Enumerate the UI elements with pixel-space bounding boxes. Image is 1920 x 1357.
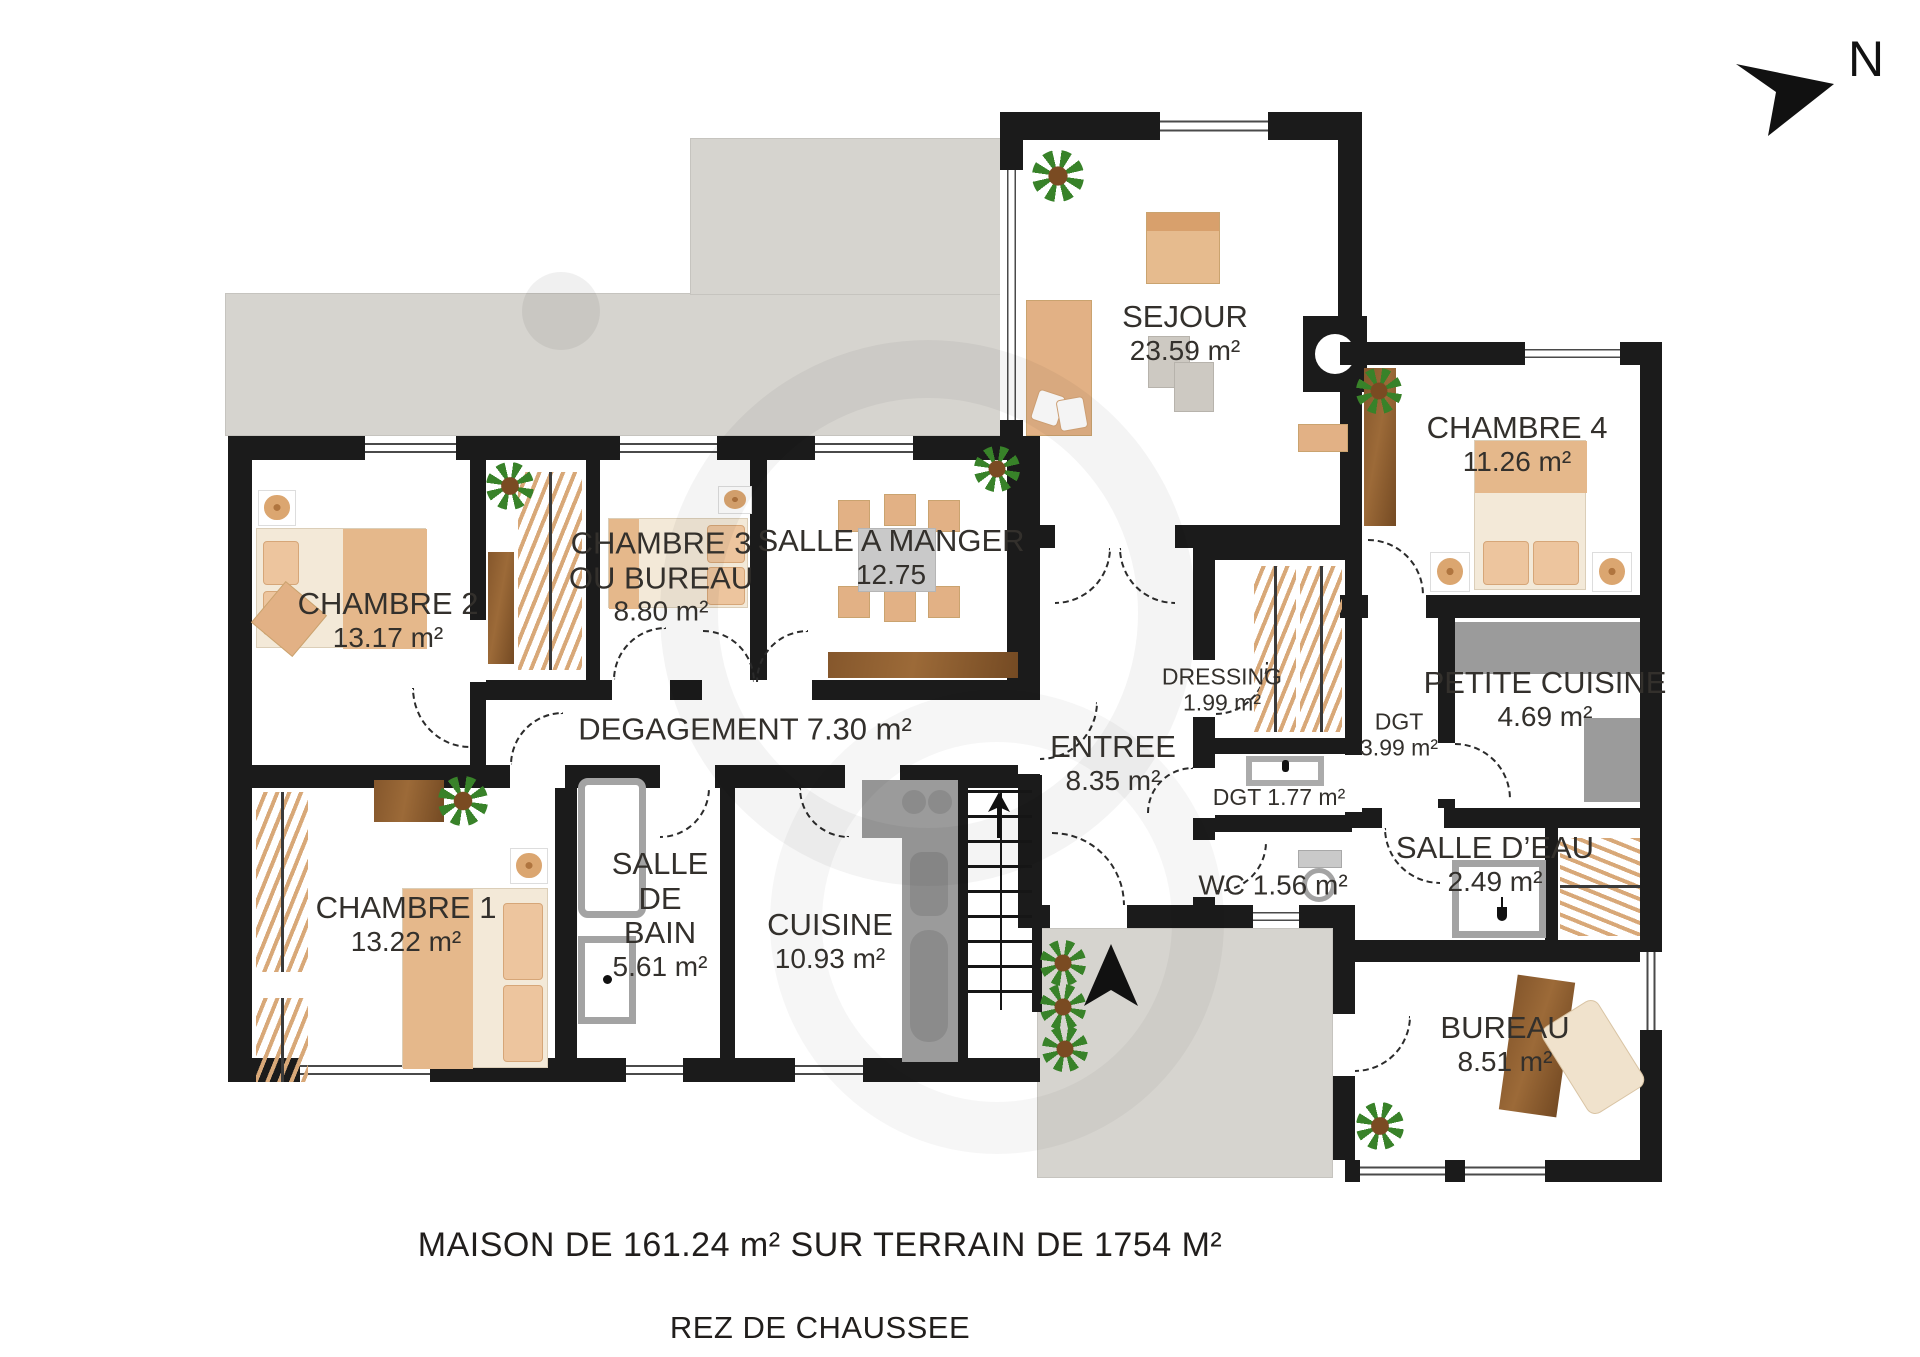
door-opening — [1345, 755, 1362, 812]
room-name: DE — [612, 882, 709, 917]
room-area: 8.35 m² — [1050, 765, 1176, 796]
room-name: WC 1.56 m² — [1198, 869, 1347, 900]
room-label-sejour: SEJOUR 23.59 m² — [1122, 300, 1248, 366]
shower-drain-neck — [1501, 897, 1503, 909]
door-arc — [1455, 743, 1511, 799]
room-name: SALLE D’EAU — [1396, 831, 1594, 866]
room-label-chambre1: CHAMBRE 1 13.22 m² — [316, 891, 497, 957]
closet-rails — [256, 792, 308, 972]
room-area: 2.49 m² — [1396, 866, 1594, 897]
sideboard — [374, 780, 444, 822]
window — [1465, 1160, 1545, 1182]
room-name: DEGAGEMENT 7.30 m² — [578, 713, 912, 748]
room-name: ENTREE — [1050, 730, 1176, 765]
room-name: PETITE CUISINE — [1424, 666, 1667, 701]
floor-plan: SEJOUR 23.59 m² CHAMBRE 4 11.26 m² CHAMB… — [0, 0, 1920, 1357]
window — [1160, 112, 1268, 140]
window — [1360, 1160, 1445, 1182]
wall — [470, 682, 486, 765]
door-opening — [612, 680, 670, 700]
shower-drain — [603, 975, 612, 984]
plant-icon — [1032, 150, 1084, 202]
room-label-cuisine: CUISINE 10.93 m² — [767, 908, 893, 974]
door-opening — [1368, 595, 1426, 618]
room-name: CHAMBRE 2 — [298, 587, 479, 622]
coffee-table — [1146, 212, 1220, 284]
room-area: 1.99 m² — [1162, 690, 1282, 716]
wall — [1340, 388, 1362, 545]
room-area: 12.75 — [757, 559, 1024, 590]
nightstand — [1430, 552, 1470, 592]
window — [1253, 905, 1299, 928]
nightstand — [258, 490, 296, 526]
watermark — [522, 272, 600, 350]
wall — [228, 436, 252, 1082]
room-name: DRESSING — [1162, 664, 1282, 690]
plant-icon — [1356, 1102, 1404, 1150]
door-opening — [510, 765, 565, 788]
room-label-degagement: DEGAGEMENT 7.30 m² — [578, 713, 912, 748]
window — [626, 1058, 683, 1082]
room-name: BUREAU — [1440, 1011, 1569, 1046]
plant-icon — [1356, 368, 1402, 414]
room-area: 23.59 m² — [1122, 335, 1248, 366]
bed-pillow — [1483, 541, 1529, 585]
room-name: SALLE — [612, 847, 709, 882]
room-label-salle-deau: SALLE D’EAU 2.49 m² — [1396, 831, 1594, 897]
console-knob — [1282, 760, 1289, 772]
shower-drain — [1497, 907, 1507, 921]
room-name: SEJOUR — [1122, 300, 1248, 335]
room-label-petite-cuisine: PETITE CUISINE 4.69 m² — [1424, 666, 1667, 732]
bed-pillow — [263, 541, 299, 585]
room-label-wc: WC 1.56 m² — [1198, 869, 1347, 900]
plan-subtitle: REZ DE CHAUSSEE — [0, 1310, 1640, 1346]
toilet-tank — [1298, 850, 1342, 868]
window — [365, 436, 456, 460]
north-arrow-icon — [1728, 30, 1846, 140]
wall — [1193, 545, 1362, 560]
door-arc — [1355, 1016, 1411, 1072]
wall — [1640, 342, 1662, 1182]
room-area: 11.26 m² — [1427, 446, 1608, 477]
room-name: OU BUREAU — [569, 561, 753, 596]
room-area: 3.99 m² — [1360, 735, 1438, 761]
door-opening — [1438, 743, 1455, 799]
wall — [720, 788, 735, 1058]
bed-pillow — [1533, 541, 1579, 585]
room-name: CHAMBRE 1 — [316, 891, 497, 926]
room-label-salle-a-manger: SALLE A MANGER 12.75 — [757, 524, 1024, 590]
plant-icon — [438, 776, 488, 826]
room-area: 13.17 m² — [298, 622, 479, 653]
room-area: 8.51 m² — [1440, 1046, 1569, 1077]
wardrobe — [488, 552, 514, 664]
window — [620, 436, 717, 460]
armchair — [1298, 424, 1348, 452]
room-label-bureau: BUREAU 8.51 m² — [1440, 1011, 1569, 1077]
room-label-salle-de-bain: SALLE DE BAIN 5.61 m² — [612, 847, 709, 983]
console — [1246, 756, 1324, 786]
room-name: SALLE A MANGER — [757, 524, 1024, 559]
room-name: DGT 1.77 m² — [1213, 785, 1346, 811]
terrace — [690, 138, 1002, 295]
room-area: 13.22 m² — [316, 926, 497, 957]
door-arc — [660, 788, 710, 838]
room-label-chambre4: CHAMBRE 4 11.26 m² — [1427, 411, 1608, 477]
door-arc — [613, 627, 666, 680]
room-area: 4.69 m² — [1424, 701, 1667, 732]
room-name: CUISINE — [767, 908, 893, 943]
room-label-dressing: DRESSING 1.99 m² — [1162, 664, 1282, 716]
window — [1640, 952, 1662, 1030]
room-label-dgt-177: DGT 1.77 m² — [1213, 785, 1346, 811]
wall — [555, 788, 577, 1058]
closet-rails — [1300, 566, 1342, 732]
room-name: CHAMBRE 4 — [1427, 411, 1608, 446]
door-opening — [1382, 808, 1444, 828]
bed-pillow — [503, 985, 543, 1062]
room-name: BAIN — [612, 917, 709, 952]
room-label-entree: ENTREE 8.35 m² — [1050, 730, 1176, 796]
room-area: 5.61 m² — [612, 951, 709, 982]
door-opening — [1333, 1014, 1355, 1076]
door-arc — [1368, 539, 1424, 595]
door-arc — [510, 712, 563, 765]
window — [1525, 342, 1620, 365]
closet-rails — [256, 998, 308, 1082]
room-area: 10.93 m² — [767, 943, 893, 974]
bed-pillow — [503, 903, 543, 980]
pouf — [1174, 362, 1214, 412]
room-area: 8.80 m² — [569, 596, 753, 627]
room-label-chambre3: CHAMBRE 3 OU BUREAU 8.80 m² — [569, 527, 753, 628]
door-arc — [412, 688, 470, 748]
nightstand — [1592, 552, 1632, 592]
wall — [1212, 815, 1352, 832]
wall — [1345, 940, 1662, 962]
room-name: CHAMBRE 3 — [569, 527, 753, 562]
plant-icon — [486, 462, 534, 510]
wall — [1338, 140, 1362, 322]
plan-title: MAISON DE 161.24 m² SUR TERRAIN DE 1754 … — [0, 1226, 1640, 1265]
compass-north-label: N — [1848, 30, 1884, 88]
wall — [1212, 738, 1352, 754]
room-label-chambre2: CHAMBRE 2 13.17 m² — [298, 587, 479, 653]
nightstand — [510, 848, 548, 884]
